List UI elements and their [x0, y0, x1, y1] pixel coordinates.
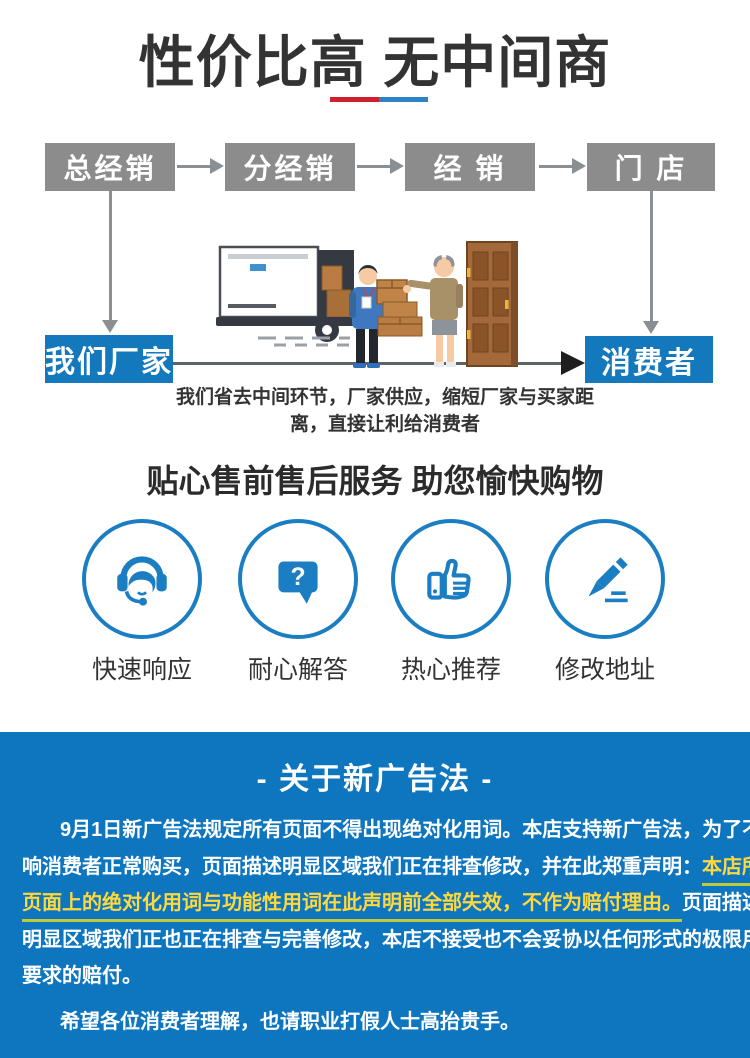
disclaimer-text: 响消费者正常购买，页面描述明显区域我们正在排查修改，并在此郑重声明： — [22, 856, 702, 878]
disclaimer-highlight: 本店所有 — [702, 856, 750, 886]
underline-red-bar — [330, 97, 379, 102]
page-title: 性价比高 无中间商 — [0, 18, 750, 99]
disclaimer-line: 页面上的绝对化用词与功能性用词在此声明前全部失效，不作为赔付理由。页面描述不 — [22, 885, 728, 922]
factory-box: 我们厂家 — [45, 335, 173, 383]
arrow-down-icon — [643, 321, 659, 334]
thumbs-up-icon — [418, 546, 484, 612]
arrow-right-icon — [357, 165, 390, 168]
service-label-recommend: 热心推荐 — [371, 650, 531, 686]
arrow-right-icon — [210, 158, 224, 174]
service-label-answers: 耐心解答 — [218, 650, 378, 686]
disclaimer-title: - 关于新广告法 - — [0, 754, 750, 798]
arrow-down-icon — [102, 320, 118, 333]
arrow-right-icon — [539, 165, 572, 168]
service-label-response: 快速响应 — [62, 650, 222, 686]
delivery-illustration — [200, 238, 520, 368]
service-circle-address — [545, 519, 665, 639]
question-bubble-icon: ? — [265, 546, 331, 612]
flow-caption-line2: 离，直接让利给消费者 — [290, 414, 480, 435]
consumer-box: 消费者 — [585, 336, 713, 383]
flow-box-sub-distributor: 分经销 — [225, 143, 355, 191]
flow-box-general-distributor: 总经销 — [45, 143, 175, 191]
arrow-right-icon — [572, 158, 586, 174]
connector-line — [109, 191, 112, 321]
disclaimer-line: 明显区域我们正也正在排查与完善修改，本店不接受也不会妥协以任何形式的极限用词 — [22, 922, 728, 959]
service-circle-answers: ? — [238, 519, 358, 639]
disclaimer-line: 9月1日新广告法规定所有页面不得出现绝对化用词。本店支持新广告法，为了不影 — [22, 812, 728, 849]
headset-icon — [109, 546, 175, 612]
arrow-right-icon — [177, 165, 210, 168]
promo-page: 性价比高 无中间商 总经销 分经销 经 销 门 店 我们厂家 消费者 — [0, 0, 750, 1058]
flow-caption-line1: 我们省去中间环节，厂家供应，缩短厂家与买家距 — [176, 387, 594, 408]
disclaimer-text: 页面描述不 — [682, 892, 750, 914]
underline-blue-bar — [379, 97, 428, 102]
services-title: 贴心售前售后服务 助您愉快购物 — [0, 456, 750, 502]
ad-law-disclaimer-section: - 关于新广告法 - 9月1日新广告法规定所有页面不得出现绝对化用词。本店支持新… — [0, 732, 750, 1058]
flow-box-store: 门 店 — [587, 143, 715, 191]
title-underline — [330, 97, 428, 102]
service-label-address: 修改地址 — [525, 650, 685, 686]
arrow-right-icon — [390, 158, 404, 174]
disclaimer-line: 响消费者正常购买，页面描述明显区域我们正在排查修改，并在此郑重声明：本店所有 — [22, 849, 728, 886]
pencil-icon — [572, 546, 638, 612]
disclaimer-body: 9月1日新广告法规定所有页面不得出现绝对化用词。本店支持新广告法，为了不影 响消… — [0, 812, 750, 1041]
flow-box-dealer: 经 销 — [405, 143, 535, 191]
svg-text:?: ? — [290, 564, 305, 591]
service-circle-recommend — [391, 519, 511, 639]
flow-caption: 我们省去中间环节，厂家供应，缩短厂家与买家距 离，直接让利给消费者 — [150, 384, 620, 438]
disclaimer-line: 要求的赔付。 — [22, 958, 728, 995]
connector-line — [650, 191, 653, 322]
disclaimer-line: 希望各位消费者理解，也请职业打假人士高抬贵手。 — [22, 1004, 728, 1041]
service-circle-response — [82, 519, 202, 639]
arrow-right-black-icon — [561, 351, 585, 375]
disclaimer-highlight: 页面上的绝对化用词与功能性用词在此声明前全部失效，不作为赔付理由。 — [22, 892, 682, 922]
